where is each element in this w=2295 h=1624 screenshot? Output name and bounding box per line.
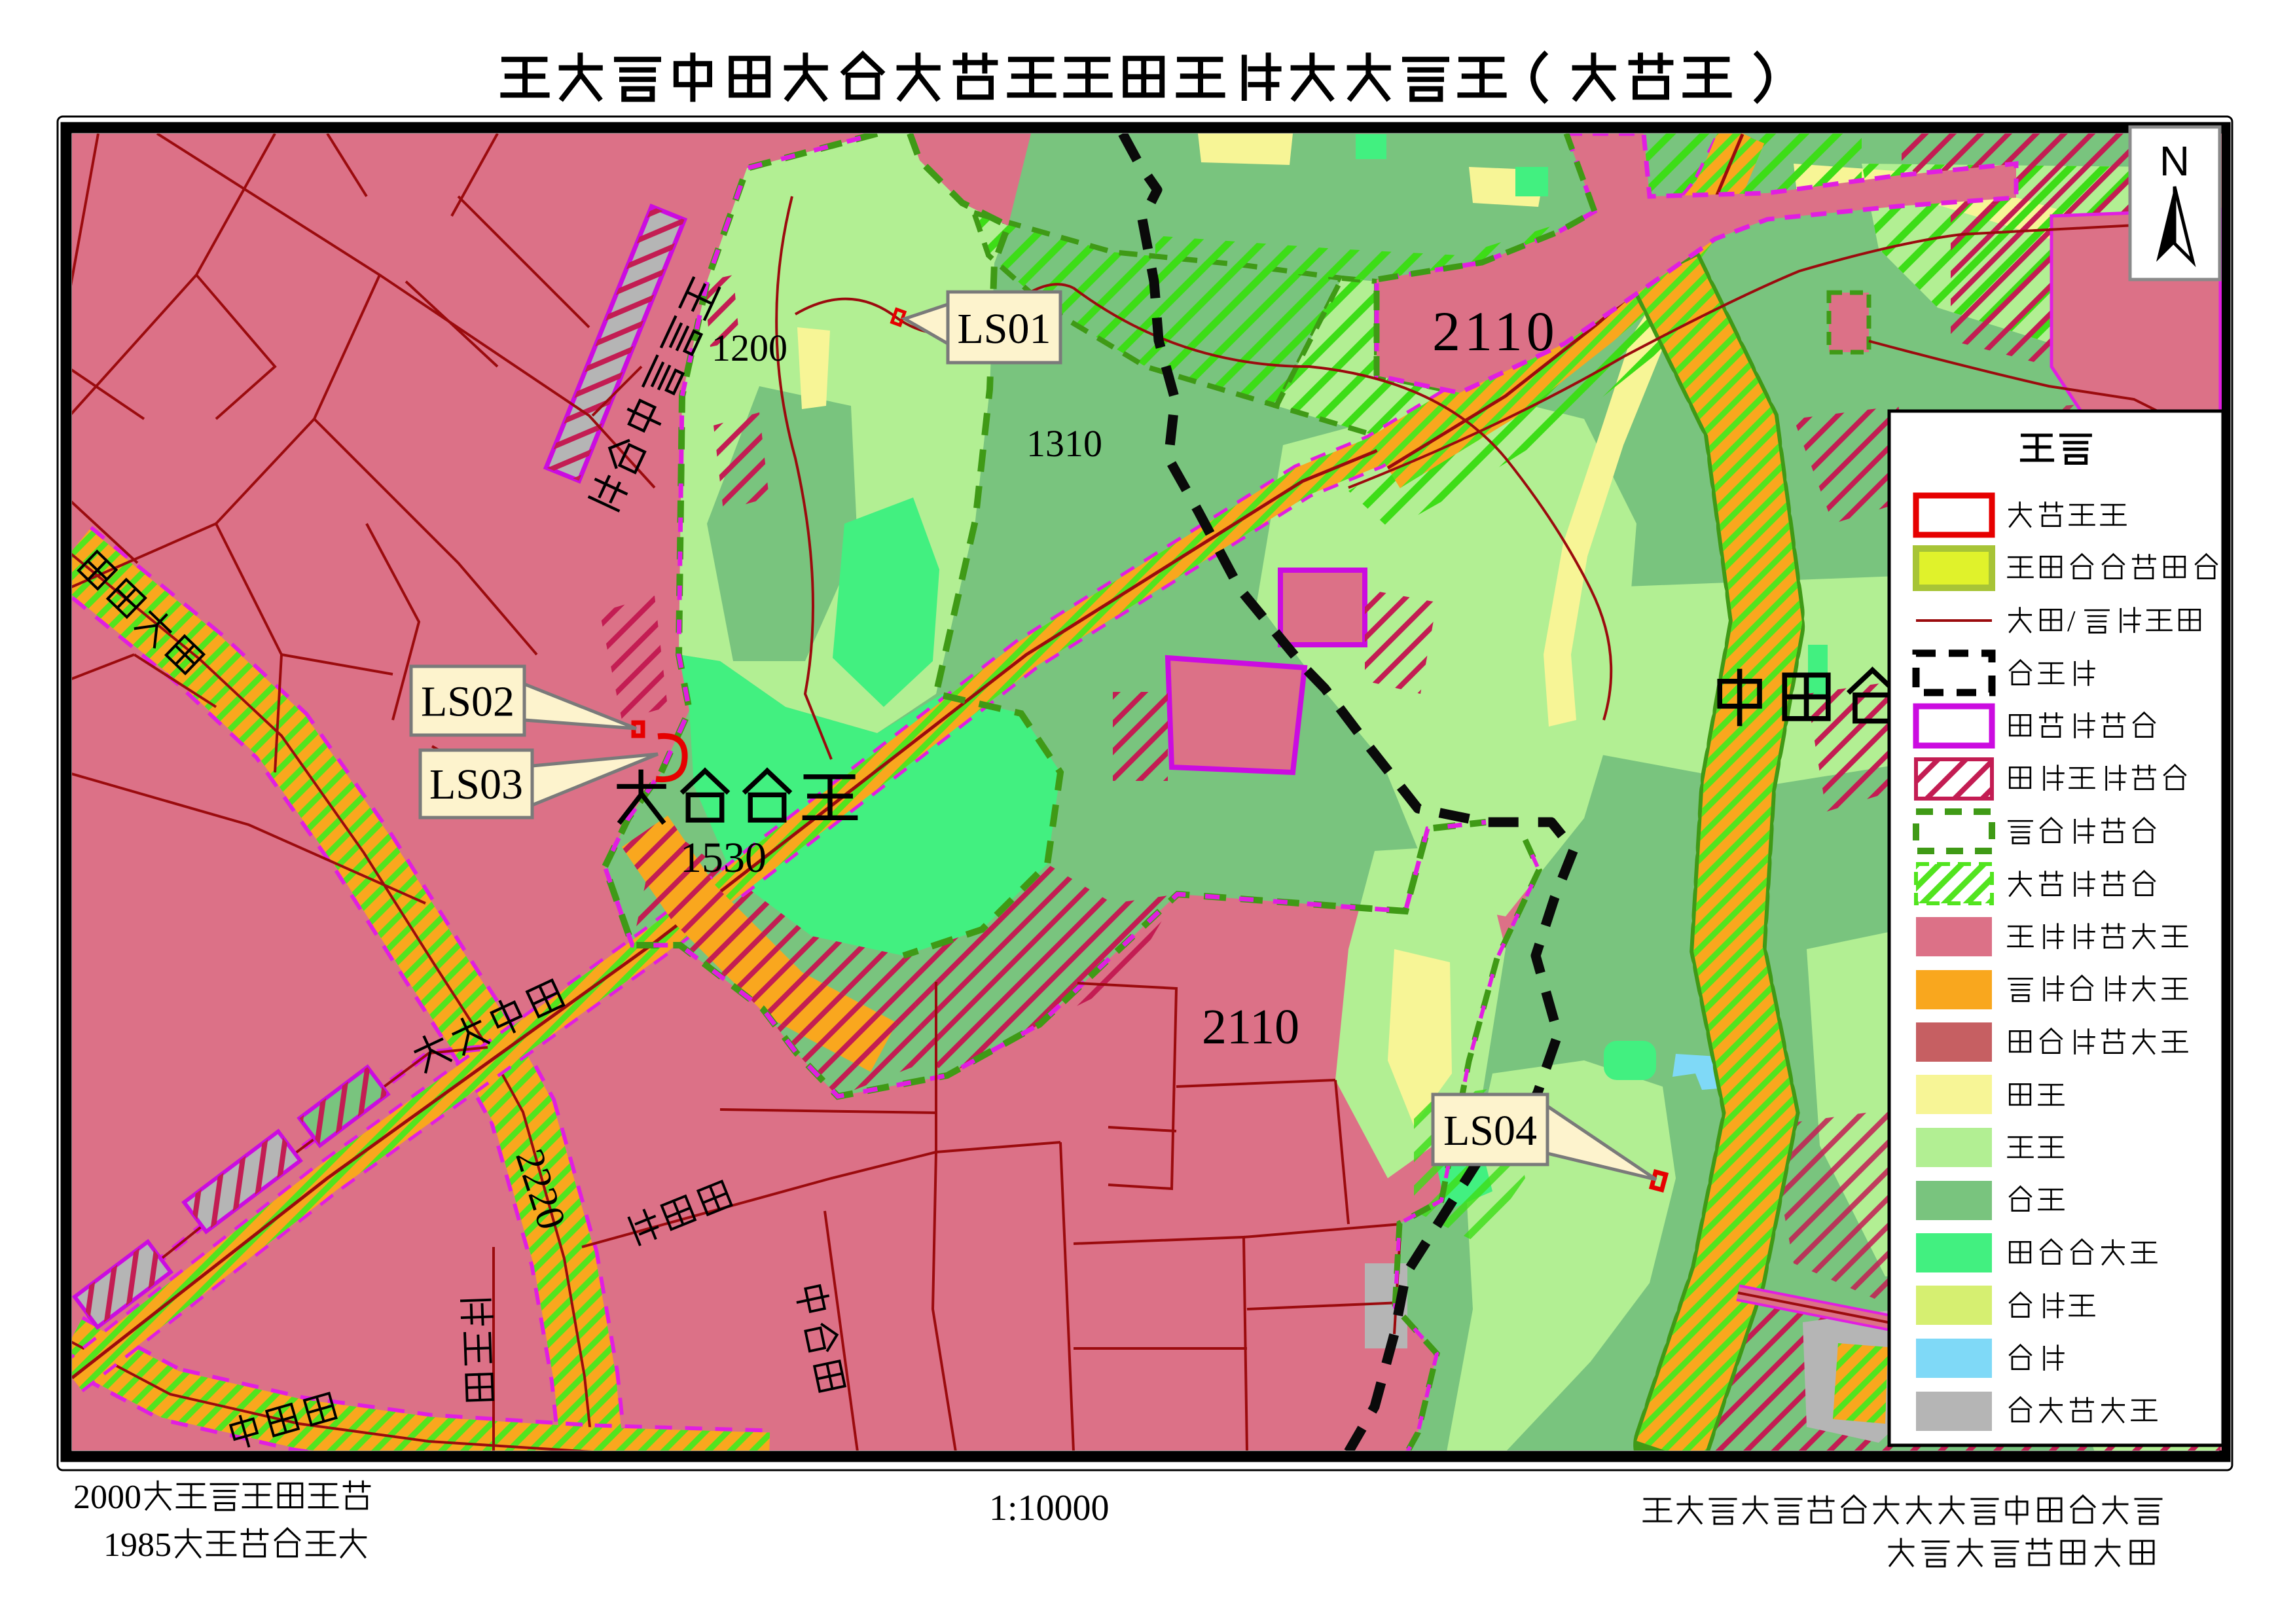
svg-text:1530: 1530 (680, 834, 767, 882)
svg-text:1:10000: 1:10000 (989, 1488, 1110, 1528)
svg-text:LS03: LS03 (429, 761, 523, 808)
svg-text:2000: 2000 (73, 1479, 141, 1516)
svg-text:LS02: LS02 (421, 678, 515, 726)
svg-text:1200: 1200 (712, 327, 787, 369)
svg-text:/: / (2067, 605, 2076, 638)
svg-text:2110: 2110 (1432, 300, 1559, 363)
svg-text:2110: 2110 (1202, 1000, 1299, 1055)
svg-text:LS04: LS04 (1443, 1107, 1537, 1155)
svg-text:1985: 1985 (103, 1526, 172, 1564)
svg-text:N: N (2159, 137, 2190, 185)
svg-text:1310: 1310 (1026, 422, 1102, 465)
svg-text:LS01: LS01 (957, 305, 1051, 353)
